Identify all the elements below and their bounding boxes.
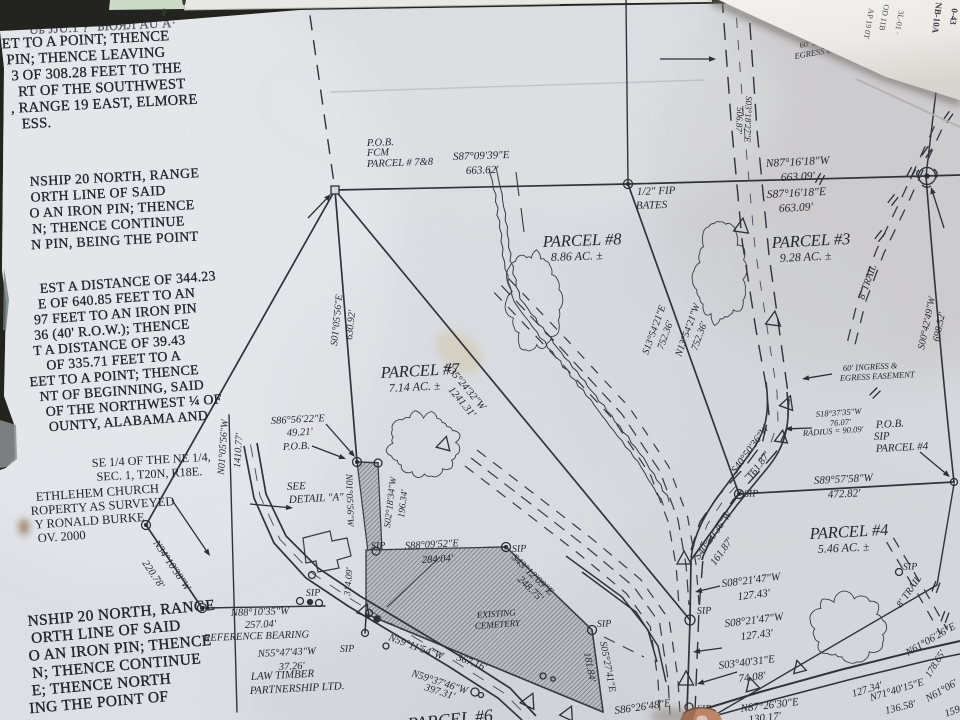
svg-text:N88°10'35"W: N88°10'35"W <box>230 606 291 619</box>
svg-text:8.86 AC. ±: 8.86 AC. ± <box>551 248 604 264</box>
svg-text:7.14 AC. ±: 7.14 AC. ± <box>388 378 441 395</box>
svg-text:SIP: SIP <box>597 618 612 630</box>
svg-text:663.62': 663.62' <box>466 164 500 177</box>
svg-text:SIP: SIP <box>371 540 386 552</box>
svg-text:49.21': 49.21' <box>287 427 314 439</box>
svg-text:BATES: BATES <box>636 199 668 212</box>
svg-text:SIP: SIP <box>903 561 918 573</box>
svg-text:SEE: SEE <box>287 480 307 493</box>
svg-text:SIP: SIP <box>512 543 527 555</box>
svg-text:472.82': 472.82' <box>828 487 862 501</box>
svg-text:663.09': 663.09' <box>779 201 814 215</box>
svg-text:P.O.B.: P.O.B. <box>875 418 905 432</box>
svg-text:1/2" FIP: 1/2" FIP <box>637 185 676 198</box>
svg-text:663.09': 663.09' <box>781 170 816 184</box>
svg-text:SIP: SIP <box>874 430 891 443</box>
svg-text:ESS.: ESS. <box>21 115 51 132</box>
svg-text:506.87': 506.87' <box>734 107 745 135</box>
svg-text:SIP: SIP <box>340 643 355 655</box>
svg-text:SIP: SIP <box>744 488 759 500</box>
svg-text:257.04': 257.04' <box>245 619 277 631</box>
svg-text:9.28 AC. ±: 9.28 AC. ± <box>779 248 832 265</box>
svg-text:SIP: SIP <box>306 587 321 599</box>
svg-text:P.O.B.: P.O.B. <box>282 441 310 453</box>
svg-text:0-43: 0-43 <box>948 8 960 26</box>
svg-text:SIP: SIP <box>697 605 712 617</box>
svg-text:5.46 AC. ±: 5.46 AC. ± <box>817 539 870 556</box>
svg-text:PARCEL #8: PARCEL #8 <box>541 229 622 251</box>
svg-text:284.04': 284.04' <box>422 553 454 566</box>
svg-text:FCM: FCM <box>366 147 391 159</box>
svg-text:N01°05'56"W: N01°05'56"W <box>343 473 356 528</box>
svg-text:S87°09'39"E: S87°09'39"E <box>453 149 510 163</box>
